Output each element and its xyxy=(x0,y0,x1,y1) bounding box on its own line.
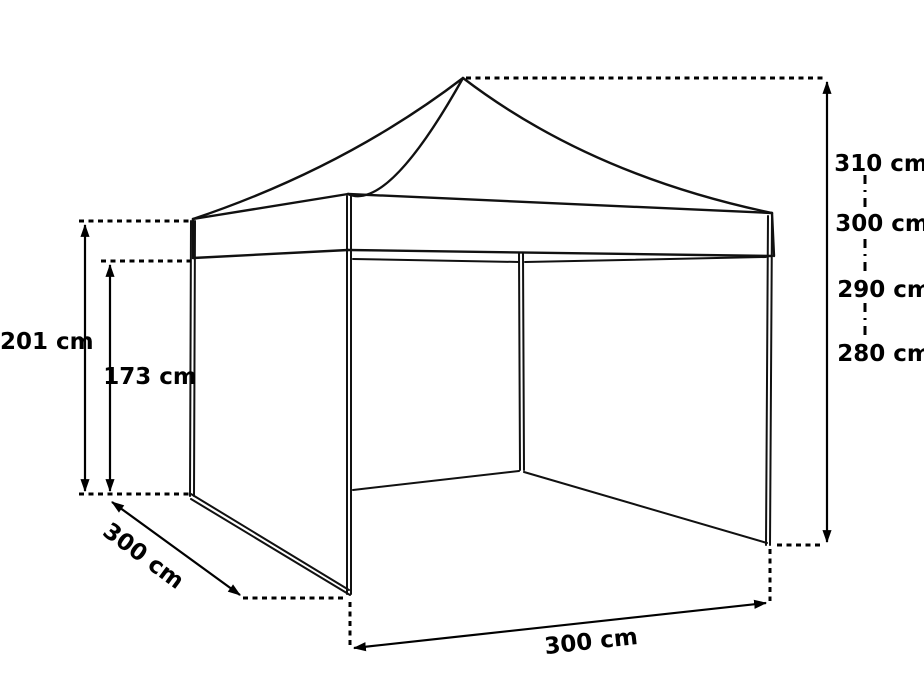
side-depth-label: 300 cm xyxy=(98,518,189,595)
front-right-leg xyxy=(766,216,772,545)
inner-wall-height-label: 173 cm xyxy=(103,364,197,390)
overall-height-label-290: 290 cm xyxy=(837,277,924,303)
right-wall-bottom-edge xyxy=(524,472,767,543)
overall-height-label-300: 300 cm xyxy=(835,211,924,237)
back-wall-bottom-edge xyxy=(353,471,519,490)
canopy-valance-bottom-front xyxy=(348,250,772,256)
back-wall-height-label: 201 cm xyxy=(0,329,94,355)
back-wall-top-edge xyxy=(353,259,519,262)
canopy-valance-top-left xyxy=(193,194,348,219)
dimension-labels: 201 cm 173 cm 300 cm 300 cm 310 cm 300 c… xyxy=(0,151,924,660)
right-wall-top-edge xyxy=(525,257,766,262)
left-wall-bottom-edge xyxy=(191,494,350,595)
front-width-label: 300 cm xyxy=(543,624,639,660)
canopy-ridge-right xyxy=(463,78,772,213)
canopy-ridge-front xyxy=(348,78,463,196)
back-right-corner-leg xyxy=(519,253,524,470)
overall-height-label-280: 280 cm xyxy=(837,341,924,367)
diagram-canvas: 201 cm 173 cm 300 cm 300 cm 310 cm 300 c… xyxy=(0,0,924,690)
tent-dimensions-diagram: 201 cm 173 cm 300 cm 300 cm 310 cm 300 c… xyxy=(0,0,924,690)
canopy-valance-bottom-left xyxy=(193,250,348,258)
overall-height-label-310: 310 cm xyxy=(834,151,924,177)
tent-structure xyxy=(190,78,774,595)
front-left-leg xyxy=(347,196,351,594)
